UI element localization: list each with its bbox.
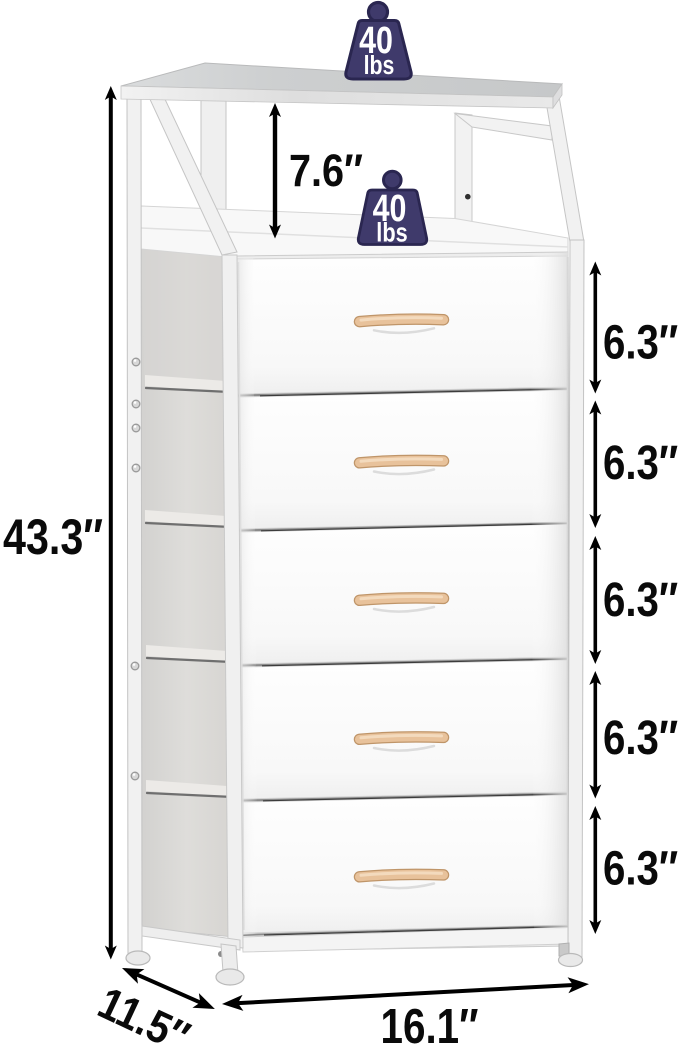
svg-text:7.6″: 7.6″ bbox=[289, 146, 363, 196]
svg-text:43.3″: 43.3″ bbox=[3, 509, 103, 565]
svg-text:6.3″: 6.3″ bbox=[603, 712, 678, 765]
svg-text:6.3″: 6.3″ bbox=[603, 842, 678, 895]
svg-text:lbs: lbs bbox=[376, 219, 407, 249]
svg-text:6.3″: 6.3″ bbox=[603, 574, 678, 627]
svg-text:6.3″: 6.3″ bbox=[603, 316, 678, 369]
svg-text:lbs: lbs bbox=[364, 51, 395, 81]
svg-text:16.1″: 16.1″ bbox=[381, 998, 479, 1046]
svg-text:11.5″: 11.5″ bbox=[91, 977, 197, 1046]
svg-text:6.3″: 6.3″ bbox=[603, 437, 678, 490]
